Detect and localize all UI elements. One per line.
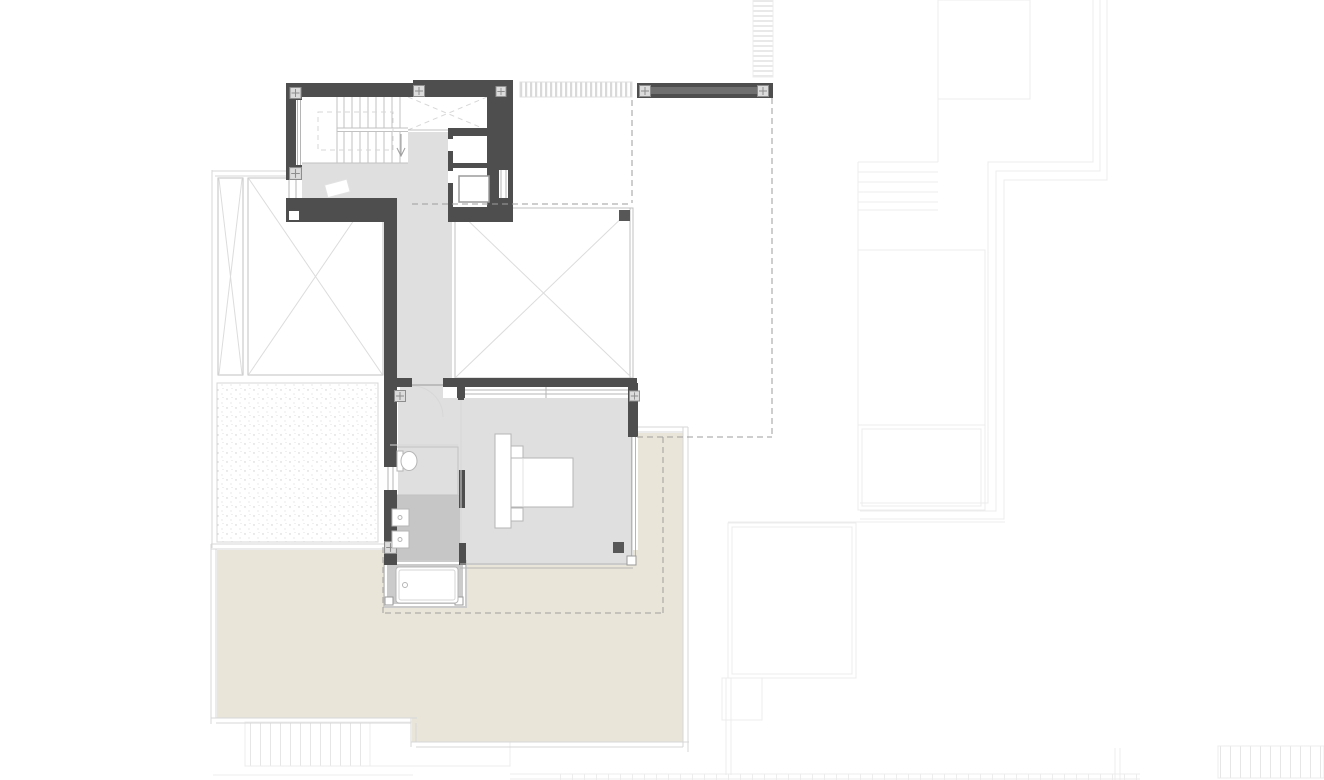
underlay-garden-stair-hatch [245,722,370,766]
column-dark [619,210,630,221]
nightstand [511,508,523,521]
floor-plan-canvas [0,0,1324,780]
post-marker [627,556,636,565]
furniture-dark-square [613,542,624,553]
sink [392,531,409,548]
window-hall-west [296,100,302,165]
wc-room [453,136,487,163]
column-marker [414,86,425,97]
terrace-slab-east [638,433,683,550]
bathtub [396,567,458,603]
wall-bedroom-north [443,378,637,387]
bed [511,458,573,507]
hallway-floor [302,163,408,198]
column-marker [640,86,651,97]
nightstand [511,446,523,459]
post-marker [385,597,393,605]
wall-core-bottom [448,207,513,222]
wall-door-stub [397,378,412,387]
door-gap [448,171,453,183]
column-marker [290,168,302,180]
wall-core-sep [448,163,513,168]
wall-bathroom-partition [459,470,465,508]
wall-top-left [286,83,425,97]
column-marker [629,391,639,401]
toilet-bowl [401,452,417,471]
column-marker [290,88,301,99]
headboard [495,434,511,528]
wall-niche [499,170,508,198]
window-spine [384,467,397,490]
detached-wall-inner [647,87,763,94]
elevator-shaft [459,176,489,202]
column-marker [758,86,769,97]
wall-bathroom-partition [459,543,466,565]
wall-bathroom-partition [458,383,464,400]
column-marker [395,391,406,402]
wall-spine-upper [384,222,397,467]
door-gap [448,139,453,151]
column-marker [496,86,506,96]
terrace-slab-left [217,550,412,718]
underlay-hatch-strip [1218,746,1324,778]
pergola-louvers [520,82,632,97]
underlay-ladder-hatch [753,0,773,77]
wall-notch [289,211,299,220]
wall-core-sep [448,128,513,136]
sink [392,509,409,526]
wall-landing-south [286,198,397,222]
wall-spine-low [384,554,397,565]
window-west-gap [286,180,302,198]
floor-plan-drawing [0,0,1324,780]
corridor-floor [408,132,452,163]
gravel-roof-area [217,383,378,542]
